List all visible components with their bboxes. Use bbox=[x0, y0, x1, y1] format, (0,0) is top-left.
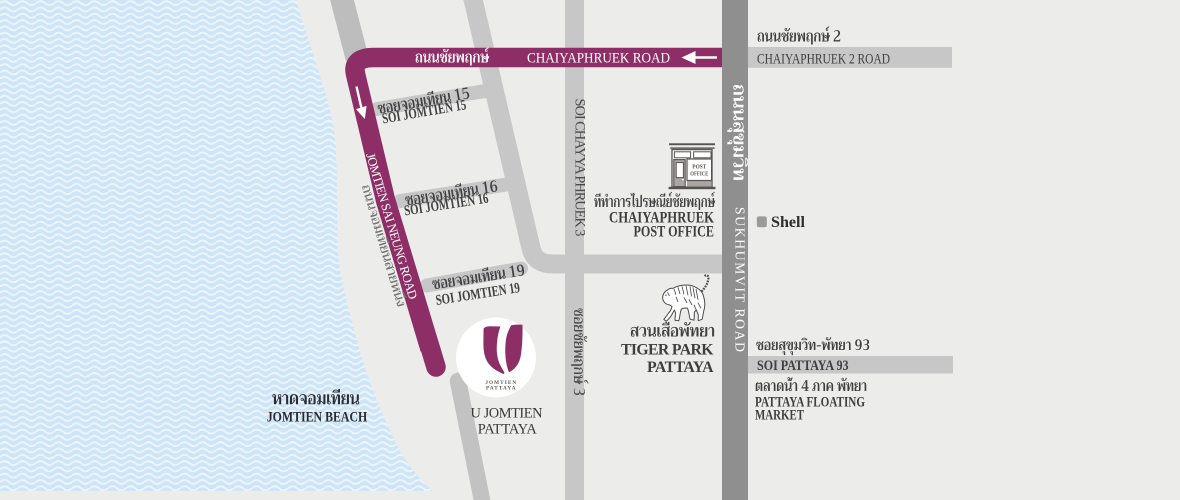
svg-text:SUKHUMVIT ROAD: SUKHUMVIT ROAD bbox=[733, 207, 748, 352]
svg-text:OFFICE: OFFICE bbox=[690, 172, 708, 178]
svg-text:PATTAYA: PATTAYA bbox=[647, 359, 714, 376]
svg-text:TIGER PARK: TIGER PARK bbox=[621, 342, 714, 359]
svg-text:POST: POST bbox=[692, 164, 706, 170]
svg-text:SOI PATTAYA 93: SOI PATTAYA 93 bbox=[757, 357, 849, 374]
svg-text:PATTAYA: PATTAYA bbox=[486, 386, 517, 392]
svg-text:CHAIYAPHRUEK 2 ROAD: CHAIYAPHRUEK 2 ROAD bbox=[757, 52, 890, 68]
svg-text:CHAIYAPHRUEK ROAD: CHAIYAPHRUEK ROAD bbox=[527, 51, 670, 67]
svg-text:U JOMTIEN: U JOMTIEN bbox=[471, 406, 544, 422]
svg-text:PATTAYA: PATTAYA bbox=[478, 422, 538, 438]
svg-text:Shell: Shell bbox=[771, 214, 806, 231]
svg-text:MARKET: MARKET bbox=[755, 408, 804, 424]
svg-text:SOI CHAYYA PHRUEK 3: SOI CHAYYA PHRUEK 3 bbox=[572, 99, 588, 237]
svg-text:JOMTIEN BEACH: JOMTIEN BEACH bbox=[267, 409, 368, 425]
svg-text:POST OFFICE: POST OFFICE bbox=[634, 223, 715, 240]
